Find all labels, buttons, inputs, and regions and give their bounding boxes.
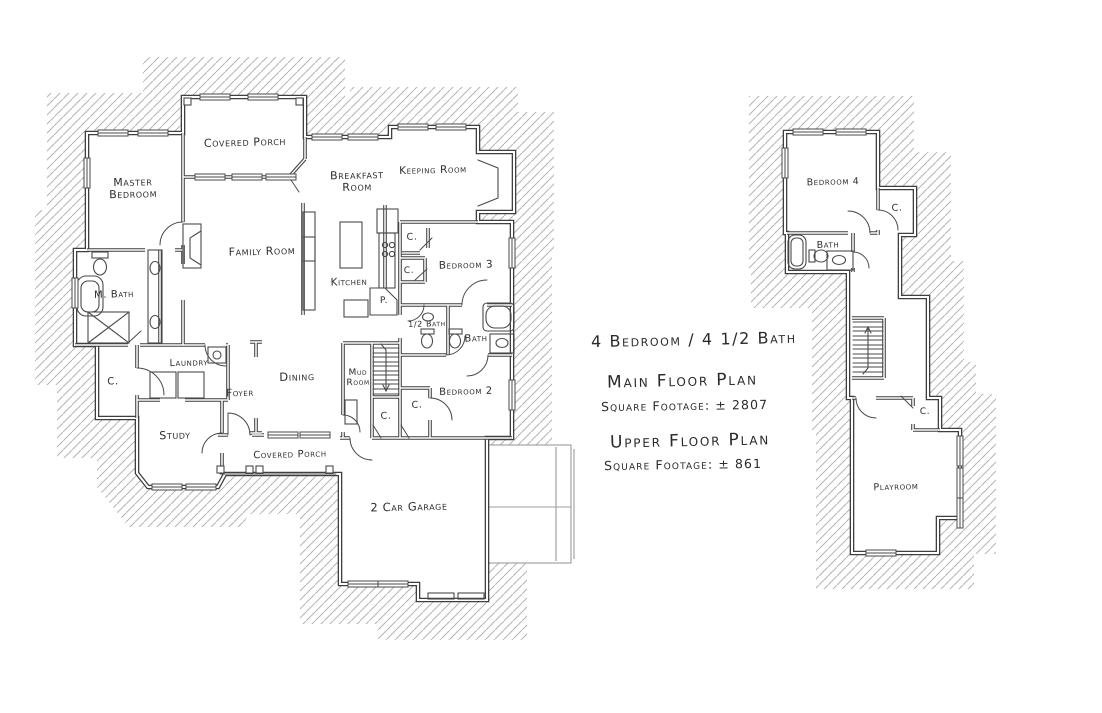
room-label-bath-upper: Bath: [817, 240, 840, 251]
room-label-keeping-room: Keeping Room: [399, 164, 467, 177]
room-label-bedroom-2: Bedroom 2: [439, 386, 493, 398]
floor-plan-sheet: Covered Porch Master Bedroom Breakfast R…: [0, 0, 1102, 713]
room-label-pantry: P.: [380, 296, 388, 306]
room-label-closet-bedroom3-b: C.: [404, 266, 415, 276]
summary-main-floor-sqft: Square Footage: ± 2807: [601, 397, 768, 414]
room-label-m-bath: M. Bath: [94, 289, 134, 301]
summary-upper-floor-sqft: Square Footage: ± 861: [604, 456, 762, 473]
room-label-closet-stairs: C.: [380, 412, 391, 423]
room-label-half-bath: 1/2 Bath: [408, 320, 446, 330]
summary-main-floor-heading: Main Floor Plan: [607, 369, 758, 392]
room-label-family-room: Family Room: [229, 245, 296, 259]
room-label-closet-bedroom4: C.: [891, 204, 902, 215]
room-label-breakfast-room: Breakfast Room: [321, 169, 394, 195]
room-label-study: Study: [159, 429, 191, 442]
driveway-slab: [487, 445, 574, 563]
room-label-bath: Bath: [464, 333, 487, 345]
room-label-playroom: Playroom: [873, 482, 918, 494]
room-label-laundry: Laundry: [170, 358, 209, 370]
room-label-kitchen: Kitchen: [330, 277, 367, 290]
room-label-covered-porch-bottom: Covered Porch: [253, 449, 327, 462]
room-label-garage: 2 Car Garage: [370, 500, 447, 515]
summary-upper-floor-heading: Upper Floor Plan: [610, 429, 770, 452]
room-label-master-bedroom: Master Bedroom: [100, 176, 167, 202]
room-label-mud-room: Mud Room: [342, 368, 374, 389]
room-label-bedroom-4: Bedroom 4: [807, 177, 860, 189]
room-label-closet-playroom: C.: [920, 407, 931, 417]
room-label-foyer: Foyer: [226, 388, 254, 400]
room-label-dining: Dining: [279, 370, 315, 384]
room-label-closet-bedroom3-a: C.: [406, 233, 417, 244]
room-label-bedroom-3: Bedroom 3: [439, 259, 494, 272]
room-label-closet-bedroom2: C.: [411, 401, 422, 412]
room-label-covered-porch-top: Covered Porch: [204, 136, 286, 150]
floor-plan-drawing: [0, 0, 1102, 713]
room-label-closet-master: C.: [107, 376, 119, 387]
